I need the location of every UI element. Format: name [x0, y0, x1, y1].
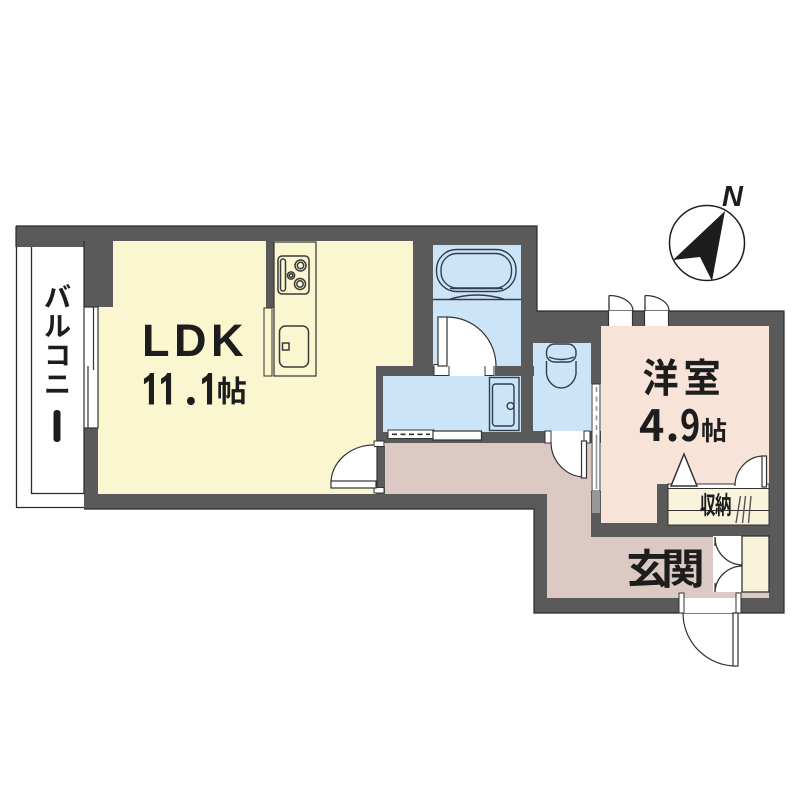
svg-text:LDK: LDK — [142, 315, 248, 366]
svg-text:N: N — [722, 181, 744, 213]
